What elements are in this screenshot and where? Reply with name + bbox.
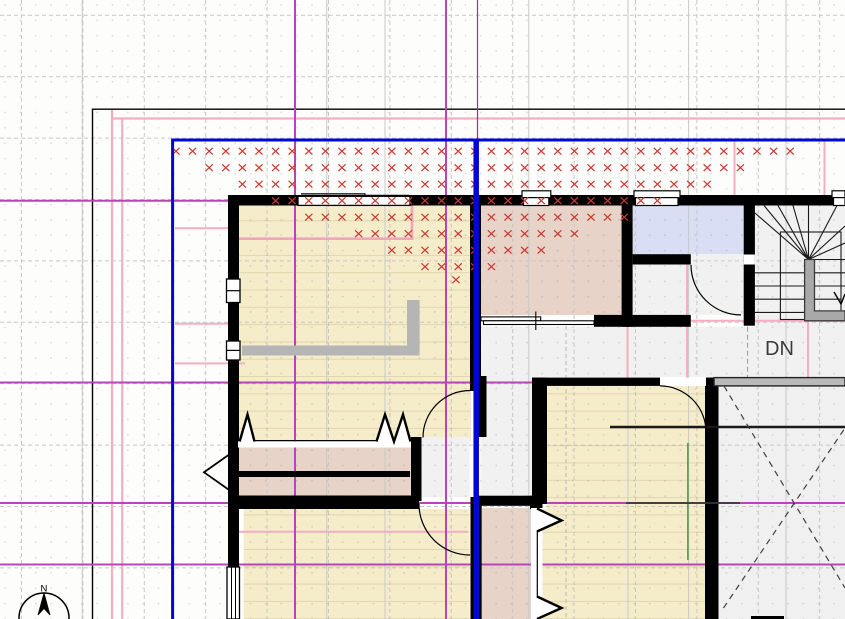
svg-text:N: N [41, 584, 48, 595]
svg-text:DN: DN [765, 338, 794, 360]
